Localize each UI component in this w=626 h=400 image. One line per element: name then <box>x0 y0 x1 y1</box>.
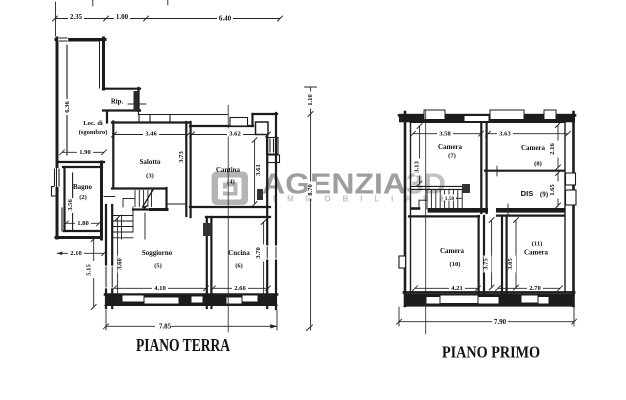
svg-text:3.61: 3.61 <box>255 164 262 176</box>
svg-text:Camera: Camera <box>438 143 463 151</box>
svg-text:4.10: 4.10 <box>154 285 166 292</box>
svg-text:3.62: 3.62 <box>229 130 241 137</box>
svg-text:1.65: 1.65 <box>549 184 556 196</box>
svg-text:Soggiorno: Soggiorno <box>142 249 173 257</box>
svg-text:(8): (8) <box>534 161 542 168</box>
svg-text:5.15: 5.15 <box>86 264 93 276</box>
svg-text:2.70: 2.70 <box>529 285 541 292</box>
svg-text:Cantina: Cantina <box>216 166 241 174</box>
svg-text:7.85: 7.85 <box>159 323 172 331</box>
svg-text:(7): (7) <box>448 153 456 160</box>
svg-text:3.60: 3.60 <box>117 258 124 270</box>
svg-text:3.63: 3.63 <box>499 130 511 137</box>
svg-text:2.10: 2.10 <box>70 250 82 257</box>
svg-text:3.58: 3.58 <box>439 130 451 137</box>
svg-text:(11): (11) <box>532 241 543 248</box>
svg-text:Camera: Camera <box>521 144 546 152</box>
svg-text:6.40: 6.40 <box>219 15 232 23</box>
svg-text:Bagno: Bagno <box>73 183 93 191</box>
svg-text:PIANO TERRA: PIANO TERRA <box>136 335 230 355</box>
svg-text:(2): (2) <box>79 194 86 201</box>
svg-text:(sgombro): (sgombro) <box>79 129 108 136</box>
svg-text:3.46: 3.46 <box>145 130 157 137</box>
svg-text:(4): (4) <box>227 179 235 186</box>
svg-text:AGENZIA: AGENZIA <box>262 169 406 201</box>
svg-text:1.50: 1.50 <box>445 196 455 202</box>
svg-text:3.13: 3.13 <box>414 161 421 173</box>
svg-text:Rip.: Rip. <box>111 99 124 106</box>
svg-text:1.00: 1.00 <box>116 13 129 21</box>
svg-text:3.75: 3.75 <box>483 258 490 270</box>
svg-text:7.90: 7.90 <box>494 318 507 326</box>
svg-text:3.70: 3.70 <box>255 247 262 259</box>
svg-text:3.05: 3.05 <box>507 258 514 270</box>
svg-text:2.35: 2.35 <box>70 13 83 21</box>
svg-text:1.10: 1.10 <box>307 94 314 106</box>
svg-text:DIS: DIS <box>521 189 534 198</box>
svg-text:4.21: 4.21 <box>451 285 463 292</box>
svg-text:Cucina: Cucina <box>228 249 250 257</box>
svg-text:2.16: 2.16 <box>549 143 556 155</box>
svg-text:8.70: 8.70 <box>307 184 314 196</box>
svg-text:Loc. di: Loc. di <box>83 120 103 127</box>
svg-text:(9): (9) <box>540 191 549 199</box>
svg-text:(10): (10) <box>450 261 461 268</box>
svg-text:2.66: 2.66 <box>234 285 246 292</box>
svg-text:1.90: 1.90 <box>79 149 91 156</box>
svg-text:Camera: Camera <box>524 249 549 257</box>
svg-text:Salotto: Salotto <box>140 158 162 166</box>
svg-text:Camera: Camera <box>440 247 465 255</box>
svg-text:3.56: 3.56 <box>67 199 74 211</box>
svg-text:3.73: 3.73 <box>178 151 185 163</box>
svg-text:PIANO PRIMO: PIANO PRIMO <box>442 343 540 362</box>
svg-text:(3): (3) <box>146 173 154 180</box>
svg-text:(5): (5) <box>154 263 161 270</box>
svg-text:1.80: 1.80 <box>77 220 89 227</box>
svg-text:(6): (6) <box>235 263 242 270</box>
svg-text:6.36: 6.36 <box>64 101 71 113</box>
